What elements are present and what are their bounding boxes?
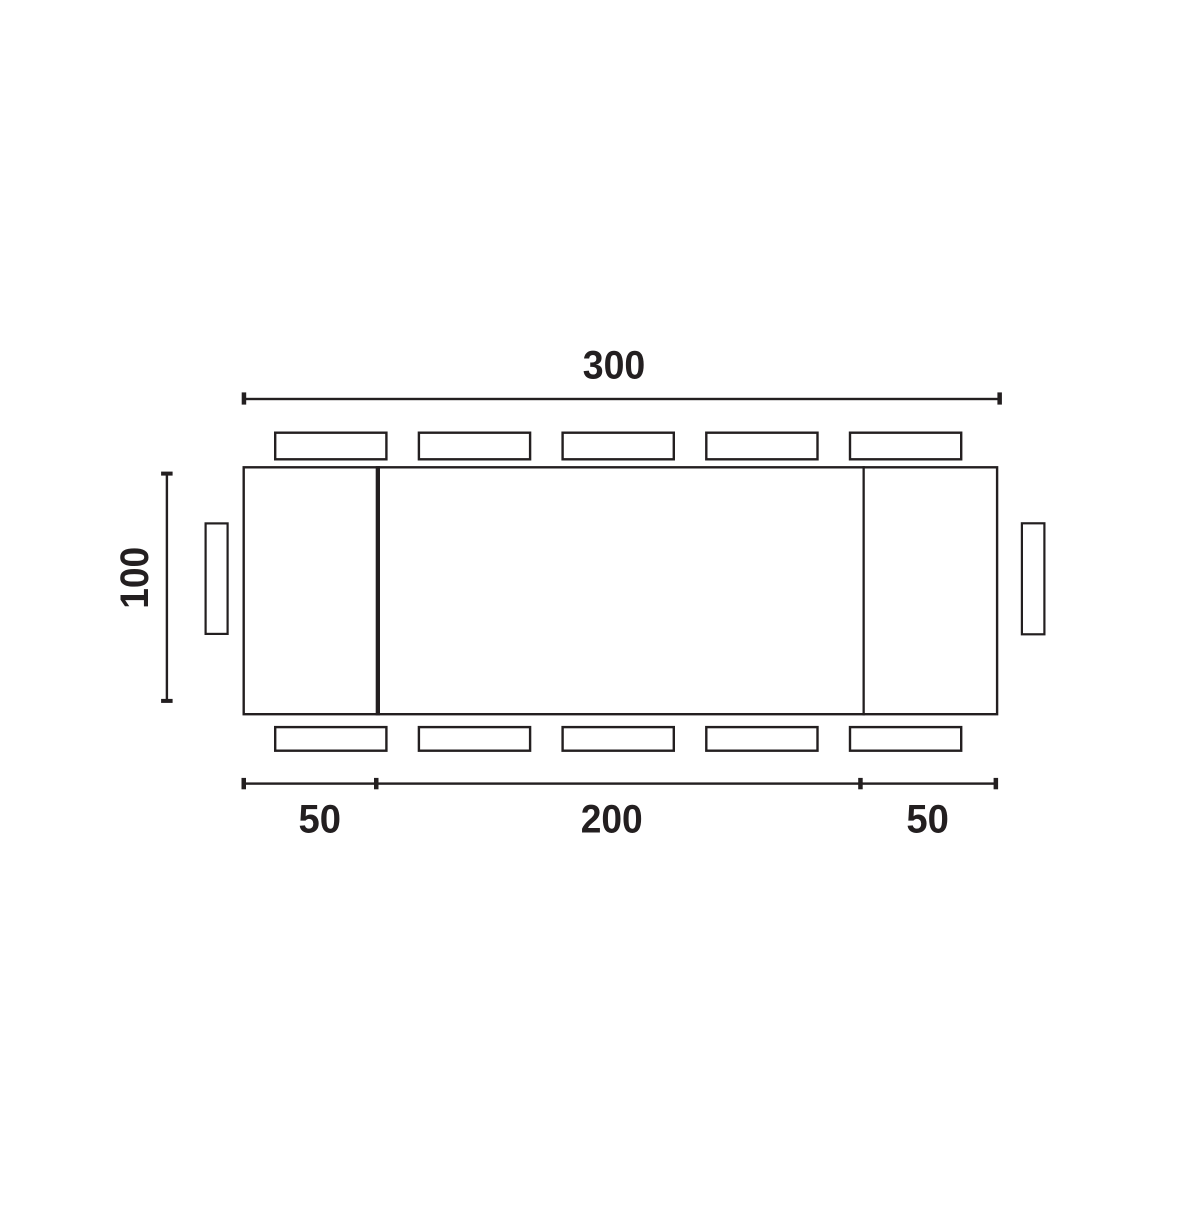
svg-text:300: 300: [583, 343, 646, 387]
svg-text:50: 50: [906, 798, 949, 842]
svg-text:100: 100: [113, 547, 157, 609]
svg-text:200: 200: [581, 798, 643, 842]
svg-text:50: 50: [299, 798, 342, 842]
